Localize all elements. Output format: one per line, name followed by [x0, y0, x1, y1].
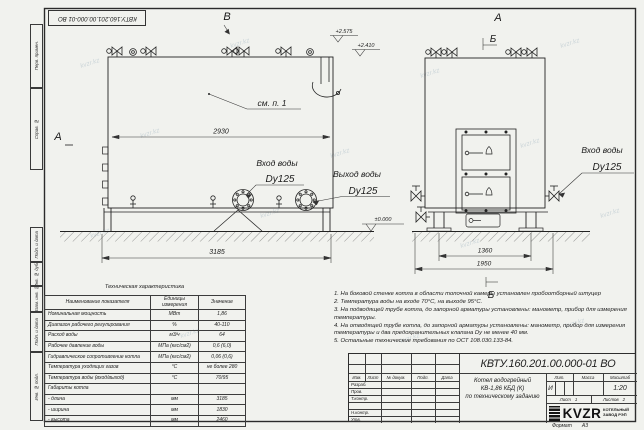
table-row: Расход водым3/ч64	[45, 331, 246, 342]
spec-header-units: Единицы измерения	[151, 296, 199, 310]
tb-col-podp: Подп.	[411, 373, 435, 381]
margin-label-inv-podl: Инв. № подл.	[30, 352, 43, 421]
tb-sheets: Листов 2	[591, 395, 637, 403]
tb-row-prov: Пров.	[349, 388, 383, 395]
table-row: Диапазон рабочего регулирования%40-110	[45, 320, 246, 331]
spec-header-name: Наименование показателя	[45, 296, 151, 310]
format-value: А3	[582, 423, 588, 429]
elevation-zero: ±0.000	[375, 217, 393, 223]
dim-1950: 1950	[477, 261, 492, 268]
drawing-sheet: kvzr.kz kvzr.kz kvzr.kz kvzr.kz kvzr.kz …	[0, 0, 644, 430]
spec-table-title: Техническая характеристика	[44, 284, 245, 290]
spec-header-value: Значение	[199, 296, 246, 310]
flue-outlet-icon	[312, 57, 341, 97]
inlet-dn-label: Dy125	[266, 174, 295, 185]
view-label-v: В	[223, 11, 230, 23]
kvzr-logo-bar-icon	[549, 406, 560, 421]
furnace-doors	[456, 129, 516, 213]
tb-scale-label: Масштаб	[603, 373, 637, 381]
outlet-dn-label: Dy125	[349, 186, 378, 197]
margin-label-vzam-inv: Взам. инв. №	[30, 286, 43, 312]
margin-label-inv-dubl: Инв. № дубл.	[30, 262, 43, 286]
technical-notes: 1. На боковой стенке котла в области топ…	[334, 291, 636, 346]
tb-row-tkontr: Т.контр.	[349, 395, 383, 402]
corner-document-number: КВТУ.160.201.00.000-01 ВО	[48, 10, 146, 26]
tb-col-list: Лист	[365, 373, 381, 381]
table-row: - ширинамм1830	[45, 405, 246, 416]
margin-label-podp-data-1: Подп. и дата	[30, 227, 43, 262]
format-label: ФорматА3	[552, 423, 588, 429]
table-row: Габариты котла	[45, 384, 246, 395]
inlet2-label: Вход воды	[581, 145, 623, 155]
note-line-3: 3. На подводящей трубе котла, до запорно…	[334, 307, 636, 321]
table-row: Температура воды (вход/выход)°С70/95	[45, 373, 246, 384]
margin-label-perv-primen: Перв. примен.	[30, 24, 43, 88]
section-label-b-top: Б	[490, 34, 497, 45]
tb-sheet: Лист 1	[546, 395, 591, 403]
inlet-label: Вход воды	[256, 158, 298, 168]
table-row: Рабочее давление водыМПа (кгс/см2)0,6 (6…	[45, 341, 246, 352]
table-row: Номинальная мощностьМВт1,86	[45, 310, 246, 321]
tb-row-utv: Утв.	[349, 416, 383, 423]
elevation-valves: +2.575	[336, 29, 354, 35]
document-number: КВТУ.160.201.00.000-01 ВО	[459, 354, 637, 373]
outlet-label: Выход воды	[333, 169, 382, 179]
elevation-top: +2.410	[358, 43, 376, 49]
ground-hatch	[60, 232, 590, 242]
note-line-2: 2. Температура воды на входе 70°С, на вы…	[334, 299, 636, 306]
product-title: Котел водогрейный КВ-1,86 КБД (К) по тех…	[460, 374, 545, 404]
tb-scale-value: 1:20	[603, 381, 637, 395]
title-block: Изм. Лист № докум. Подп. Дата Разраб. Пр…	[348, 353, 636, 422]
front-dimensions	[65, 25, 404, 263]
side-view	[411, 48, 559, 231]
water-inlet-flange-icon	[233, 190, 254, 211]
kvzr-logo-text: KVZR	[561, 403, 603, 423]
spec-table: Наименование показателя Единицы измерени…	[44, 295, 246, 427]
margin-label-podp-data-2: Подп. и дата	[30, 312, 43, 352]
tb-mass-label: Масса	[573, 373, 603, 381]
note-line-1: 1. На боковой стенке котла в области топ…	[334, 291, 636, 298]
tb-lit-label: Лит.	[546, 373, 573, 381]
table-row: - длинамм3185	[45, 394, 246, 405]
table-row: - высотамм2460	[45, 415, 246, 426]
tb-col-ndokum: № докум.	[381, 373, 411, 381]
table-row: Гидравлическое сопротивление котлаМПа (к…	[45, 352, 246, 363]
callout-see-note: см. п. 1	[258, 98, 287, 108]
tb-row-razrab: Разраб.	[349, 381, 383, 388]
table-row: Температура уходящих газов°Сне более 280	[45, 362, 246, 373]
water-outlet-flange-icon	[296, 190, 317, 211]
dim-1360: 1360	[478, 248, 493, 255]
tb-col-data: Дата	[435, 373, 459, 381]
front-view	[103, 47, 342, 231]
margin-label-sprav-no: Справ. №	[30, 88, 43, 170]
note-line-5: 5. Остальные технические требования по О…	[334, 338, 636, 345]
inlet2-dn-label: Dy125	[593, 162, 622, 173]
note-line-4: 4. На отводящей трубе котла, до запорной…	[334, 323, 636, 337]
kvzr-logo-subtext: КОТЕЛЬНЫЙ ЗАВОД РЭП	[603, 406, 636, 420]
tb-lit-value: И	[546, 381, 555, 395]
dim-3185: 3185	[209, 249, 225, 256]
view-label-a: А	[493, 12, 501, 24]
view-label-a-left: А	[53, 131, 61, 143]
tb-col-izm: Изм.	[349, 373, 365, 381]
dim-2930: 2930	[212, 129, 229, 136]
tb-row-nkontr: Н.контр.	[349, 409, 383, 416]
